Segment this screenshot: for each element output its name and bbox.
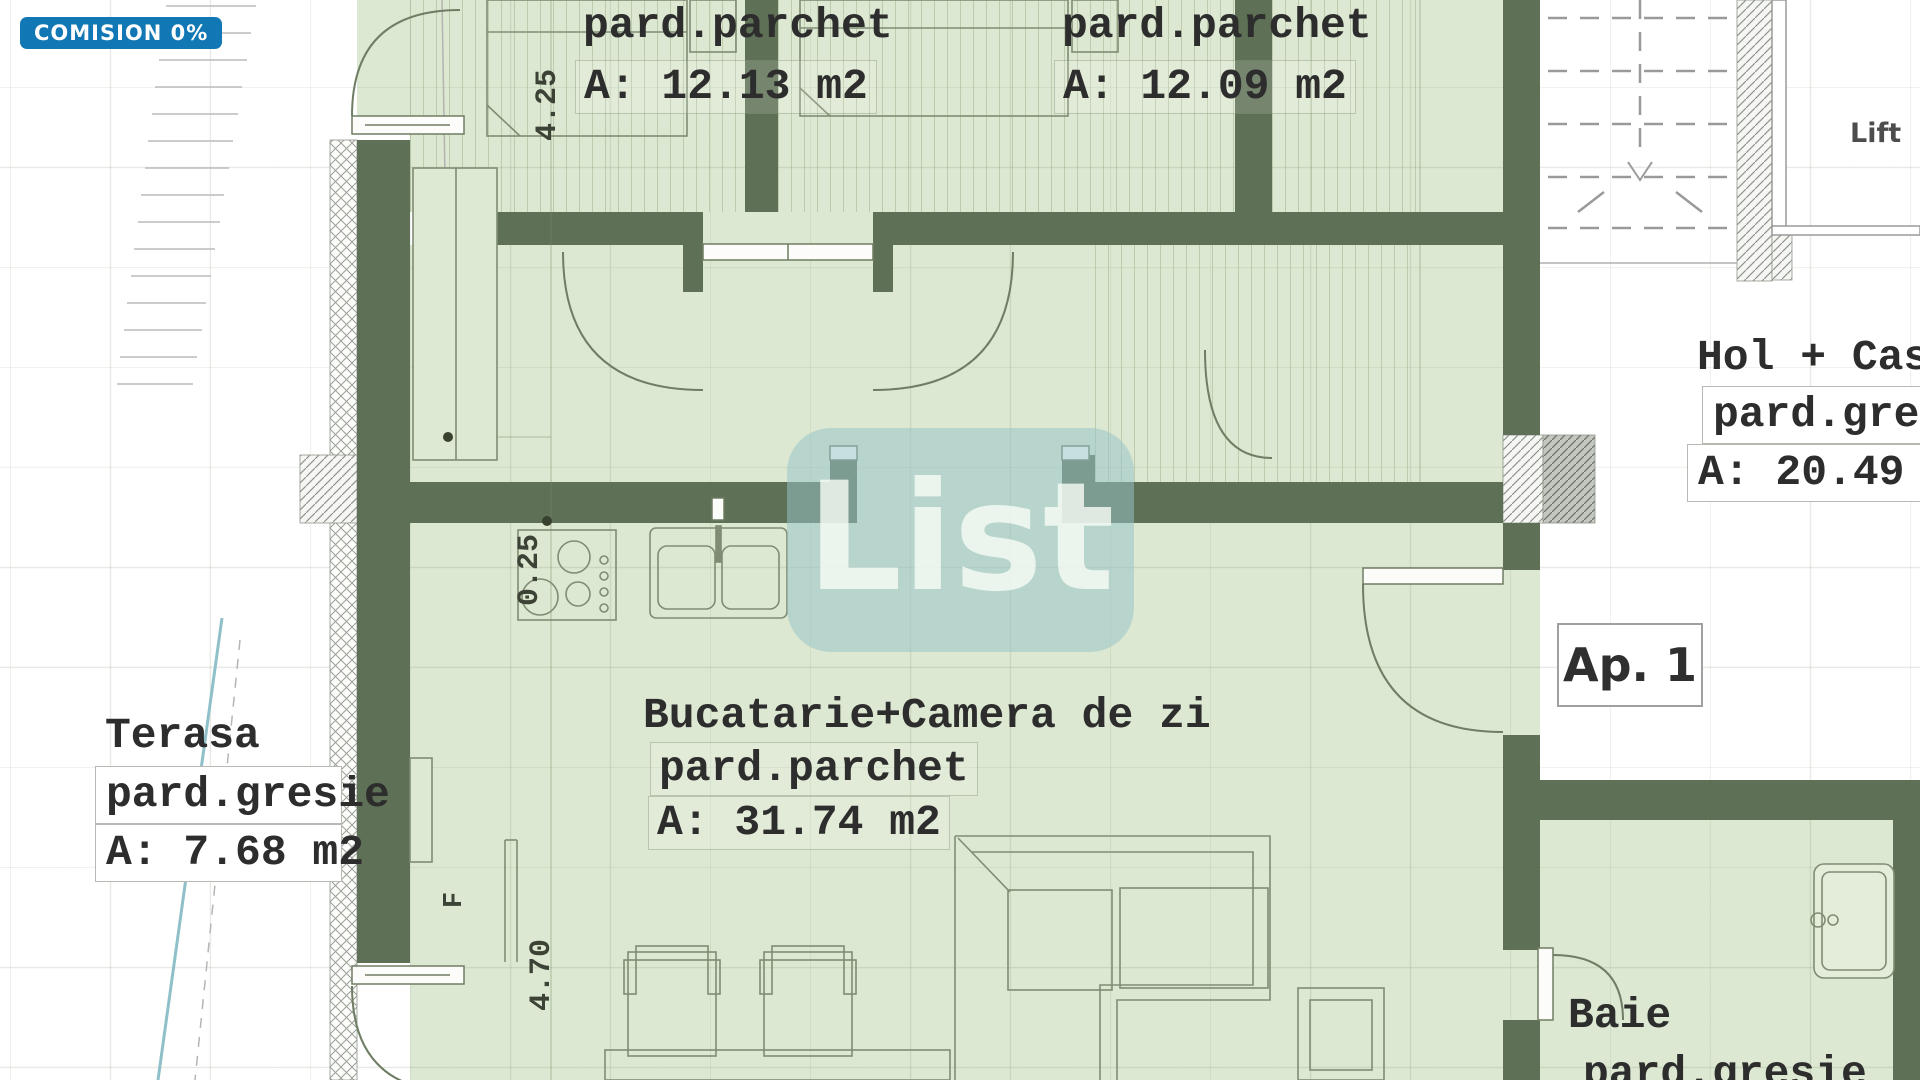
window-mark-f: F [440, 892, 470, 908]
hall-floor-type: pard.gre [1702, 386, 1920, 444]
dimension-top: 4.25 [531, 69, 565, 141]
room-hall-mid-striped [1095, 245, 1420, 482]
patch-top-left [357, 0, 410, 118]
commission-badge-text: COMISION 0% [34, 21, 208, 45]
floor-plan-canvas: List pard.parchet A: 12.13 m2 pard.parch… [0, 0, 1920, 1080]
dimension-bottom: 4.70 [525, 939, 559, 1011]
apartment-number-box: Ap. 1 [1557, 623, 1703, 707]
label-hall: Hol + Cas pard.gre A: 20.49 [1697, 332, 1920, 502]
commission-badge: COMISION 0% [20, 17, 222, 49]
patch-bedroom-doorway [703, 212, 873, 245]
bedroom1-area: A: 12.13 m2 [575, 60, 877, 114]
watermark-text: List [807, 451, 1115, 625]
terasa-area: A: 7.68 m2 [95, 824, 342, 882]
label-terasa: Terasa pard.gresie A: 7.68 m2 [105, 710, 342, 882]
bathroom-floor-type: pard.gresie [1583, 1048, 1867, 1080]
label-bedroom-1: pard.parchet A: 12.13 m2 [583, 0, 893, 114]
kitchen-floor-type: pard.parchet [650, 742, 978, 796]
patch-bath-doorway [1503, 950, 1540, 1020]
bedroom2-floor-type: pard.parchet [1062, 0, 1372, 52]
bathroom-name: Baie [1568, 990, 1867, 1042]
site-contour-lines [117, 0, 446, 1080]
terasa-name: Terasa [105, 710, 342, 762]
label-bathroom: Baie pard.gresie [1568, 990, 1867, 1080]
staircase [1540, 0, 1737, 263]
label-bedroom-2: pard.parchet A: 12.09 m2 [1062, 0, 1372, 114]
hall-name: Hol + Cas [1697, 332, 1920, 384]
apartment-number: Ap. 1 [1563, 638, 1697, 692]
bedroom1-floor-type: pard.parchet [583, 0, 893, 52]
label-kitchen-living: Bucatarie+Camera de zi pard.parchet A: 3… [643, 690, 1211, 850]
kitchen-area: A: 31.74 m2 [648, 796, 950, 850]
room-hall-upper-right [1420, 0, 1503, 212]
patch-entry-doorway [1503, 570, 1540, 735]
terasa-floor-type: pard.gresie [95, 766, 342, 824]
kitchen-name: Bucatarie+Camera de zi [643, 690, 1211, 742]
watermark-panel: List [787, 428, 1134, 652]
dimension-wall: 0.25 [513, 534, 547, 606]
hall-area: A: 20.49 [1687, 444, 1920, 502]
bedroom2-area: A: 12.09 m2 [1054, 60, 1356, 114]
lift-label: Lift [1850, 118, 1901, 149]
